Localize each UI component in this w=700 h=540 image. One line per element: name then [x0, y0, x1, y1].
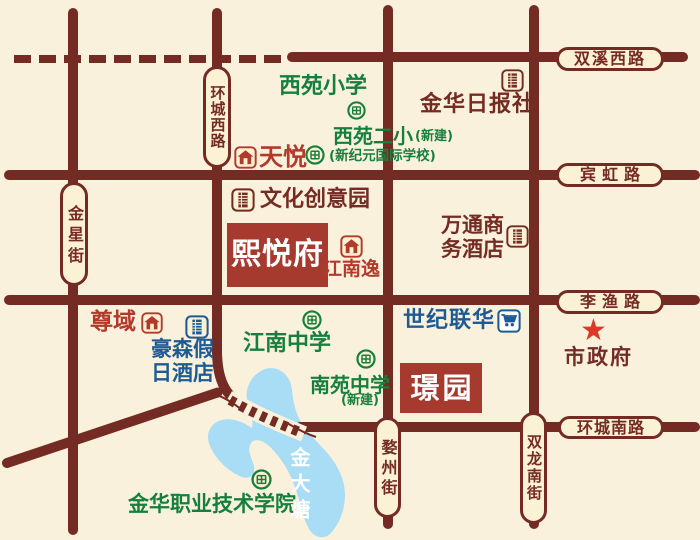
xiyuan-second-name: 西苑二小: [333, 126, 413, 146]
road-dashed-west: [14, 55, 284, 63]
label-jiangnanyi: 江南逸: [323, 260, 380, 279]
label-lake-name: 金大塘: [289, 447, 309, 525]
house-icon: [234, 146, 257, 169]
project-box-xiyuefu: 熙悦府: [227, 223, 328, 287]
city-hall-star-icon: ★: [580, 316, 607, 346]
school-icon: [347, 101, 366, 120]
location-map: 双溪西路 宾虹路 李渔路 环城南路 环城西路 金星街 婺州街 双龙南街 熙悦府 …: [0, 0, 700, 540]
label-wantong-hotel: 万通商 务酒店: [441, 215, 504, 260]
label-nanyuan-note: (新建): [341, 394, 379, 407]
label-century-mart: 世纪联华: [403, 310, 495, 332]
house-icon: [141, 312, 163, 334]
road-label-jinxing: 金星街: [60, 182, 88, 286]
road-label-shuanglong-south: 双龙南街: [520, 412, 547, 524]
wantong-line1: 万通商: [441, 215, 504, 236]
haosen-line1: 豪森假: [151, 339, 214, 360]
road-label-binhong: 宾虹路: [556, 163, 664, 187]
road-label-huancheng-west: 环城西路: [203, 66, 231, 168]
building-icon: [231, 188, 255, 212]
label-zunyu: 尊域: [90, 311, 136, 334]
label-xinjiyuan-note: (新纪元国际学校): [329, 150, 436, 164]
building-icon: [501, 69, 524, 92]
project-box-jingyuan: 璟园: [400, 363, 482, 413]
school-icon: [251, 469, 272, 490]
wantong-line2: 务酒店: [441, 239, 504, 260]
shopping-cart-icon: [497, 309, 521, 333]
road-label-shuangxi-west: 双溪西路: [556, 47, 664, 71]
label-daily-press: 金华日报社: [420, 94, 535, 116]
xiyuan-second-note: (新建): [415, 130, 453, 143]
school-icon: [305, 145, 325, 165]
label-polytechnic: 金华职业技术学院: [128, 494, 296, 515]
label-xiyuan-second: 西苑二小 (新建): [333, 126, 453, 146]
label-city-hall: 市政府: [564, 347, 633, 368]
road-diagonal-southwest: [1, 386, 224, 469]
label-tianyue: 天悦: [259, 145, 307, 169]
road-label-wuzhou: 婺州街: [374, 417, 401, 518]
haosen-line2: 日酒店: [151, 363, 214, 384]
label-jiangnan-middle: 江南中学: [243, 333, 331, 355]
road-label-liyu: 李渔路: [556, 290, 664, 314]
label-haosen-hotel: 豪森假 日酒店: [151, 339, 214, 384]
school-icon: [356, 349, 376, 369]
label-nanyuan-middle: 南苑中学: [310, 375, 390, 395]
road-label-huancheng-south: 环城南路: [558, 416, 664, 439]
label-cultural-park: 文化创意园: [260, 189, 370, 211]
label-xiyuan-primary: 西苑小学: [279, 76, 367, 98]
house-icon: [340, 235, 363, 258]
hotel-building-icon: [185, 315, 209, 339]
school-icon: [302, 310, 322, 330]
road-huancheng-west: [212, 8, 222, 358]
building-icon: [506, 225, 529, 248]
